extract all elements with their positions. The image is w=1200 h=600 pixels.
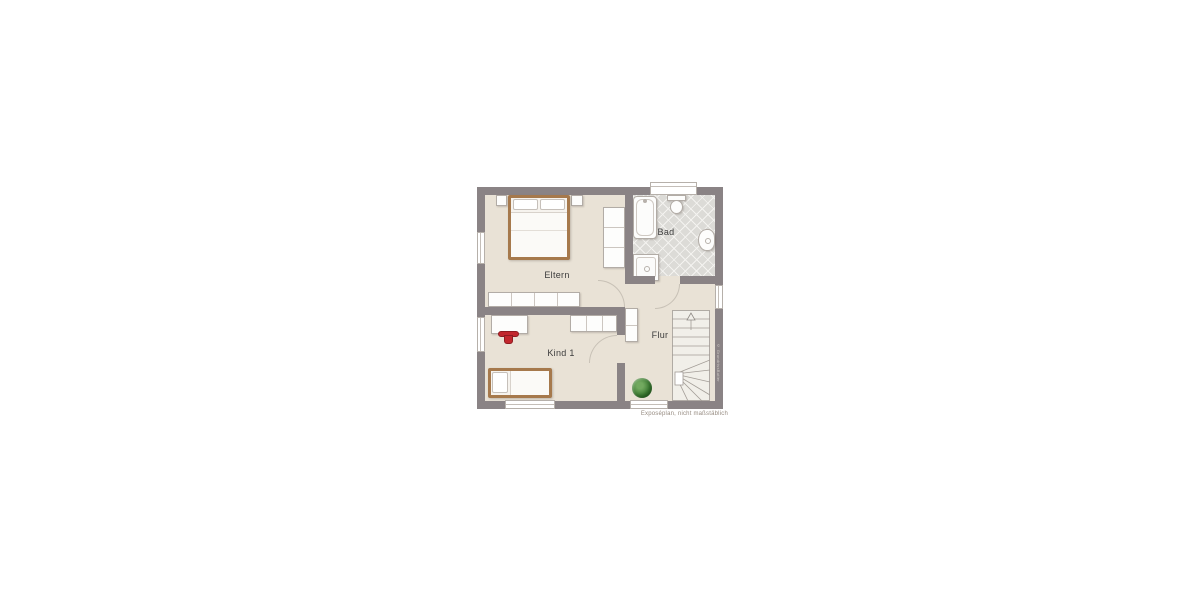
window-flur-bottom — [630, 400, 668, 409]
door-arc-eltern — [598, 280, 625, 307]
window-kind1-bottom — [505, 400, 555, 409]
double-bed — [508, 195, 570, 260]
nightstand-left — [496, 195, 507, 206]
bathtub-basin — [636, 199, 654, 236]
single-bed — [488, 368, 552, 398]
single-bed-duvet — [510, 371, 549, 395]
nightstand-right — [571, 195, 583, 206]
bed-pillow-left — [513, 199, 538, 210]
chair-seat — [504, 335, 513, 344]
door-arc-kind1 — [589, 335, 617, 363]
plan-caption: Exposéplan, nicht maßstäblich — [641, 411, 728, 417]
wall-kind1-flur-top — [617, 307, 625, 335]
door-arc-bad — [655, 284, 680, 309]
watermark-text: © GrundrissButler — [716, 343, 721, 401]
window-kind1-left — [477, 317, 485, 352]
bed-duvet — [511, 212, 567, 257]
bed-pillow-right — [540, 199, 565, 210]
staircase — [672, 310, 710, 401]
room-label-flur: Flur — [652, 330, 669, 340]
wall-eltern-bad — [625, 195, 633, 284]
sideboard-eltern — [488, 292, 580, 307]
window-eltern-left — [477, 232, 485, 264]
room-label-kind1: Kind 1 — [547, 348, 574, 358]
room-label-eltern: Eltern — [544, 270, 569, 280]
wall-eltern-kind1 — [485, 307, 617, 315]
toilet — [670, 200, 683, 214]
floorplan-drawing: Eltern Bad Flur Kind 1 © GrundrissButler — [477, 187, 723, 409]
shower-drain-icon — [644, 266, 650, 272]
window-bad-top — [650, 182, 697, 195]
wall-bad-flur-left — [625, 276, 655, 284]
desk-chair-red — [498, 331, 519, 344]
bathtub-tap-icon — [643, 199, 647, 203]
cabinet-flur — [625, 308, 638, 342]
single-bed-pillow — [492, 372, 508, 393]
wall-bad-flur-right — [680, 276, 715, 284]
duvet-fold — [511, 230, 567, 231]
washbasin — [698, 229, 715, 251]
room-label-bad: Bad — [658, 227, 675, 237]
washbasin-drain-icon — [705, 238, 711, 244]
floorplan: Eltern Bad Flur Kind 1 © GrundrissButler… — [477, 187, 723, 409]
wall-kind1-flur-bottom — [617, 363, 625, 401]
window-flur-right — [715, 285, 723, 309]
wardrobe-kind1 — [570, 315, 617, 332]
bathtub — [633, 196, 657, 239]
wardrobe-eltern — [603, 207, 625, 268]
plant-icon — [632, 378, 652, 398]
